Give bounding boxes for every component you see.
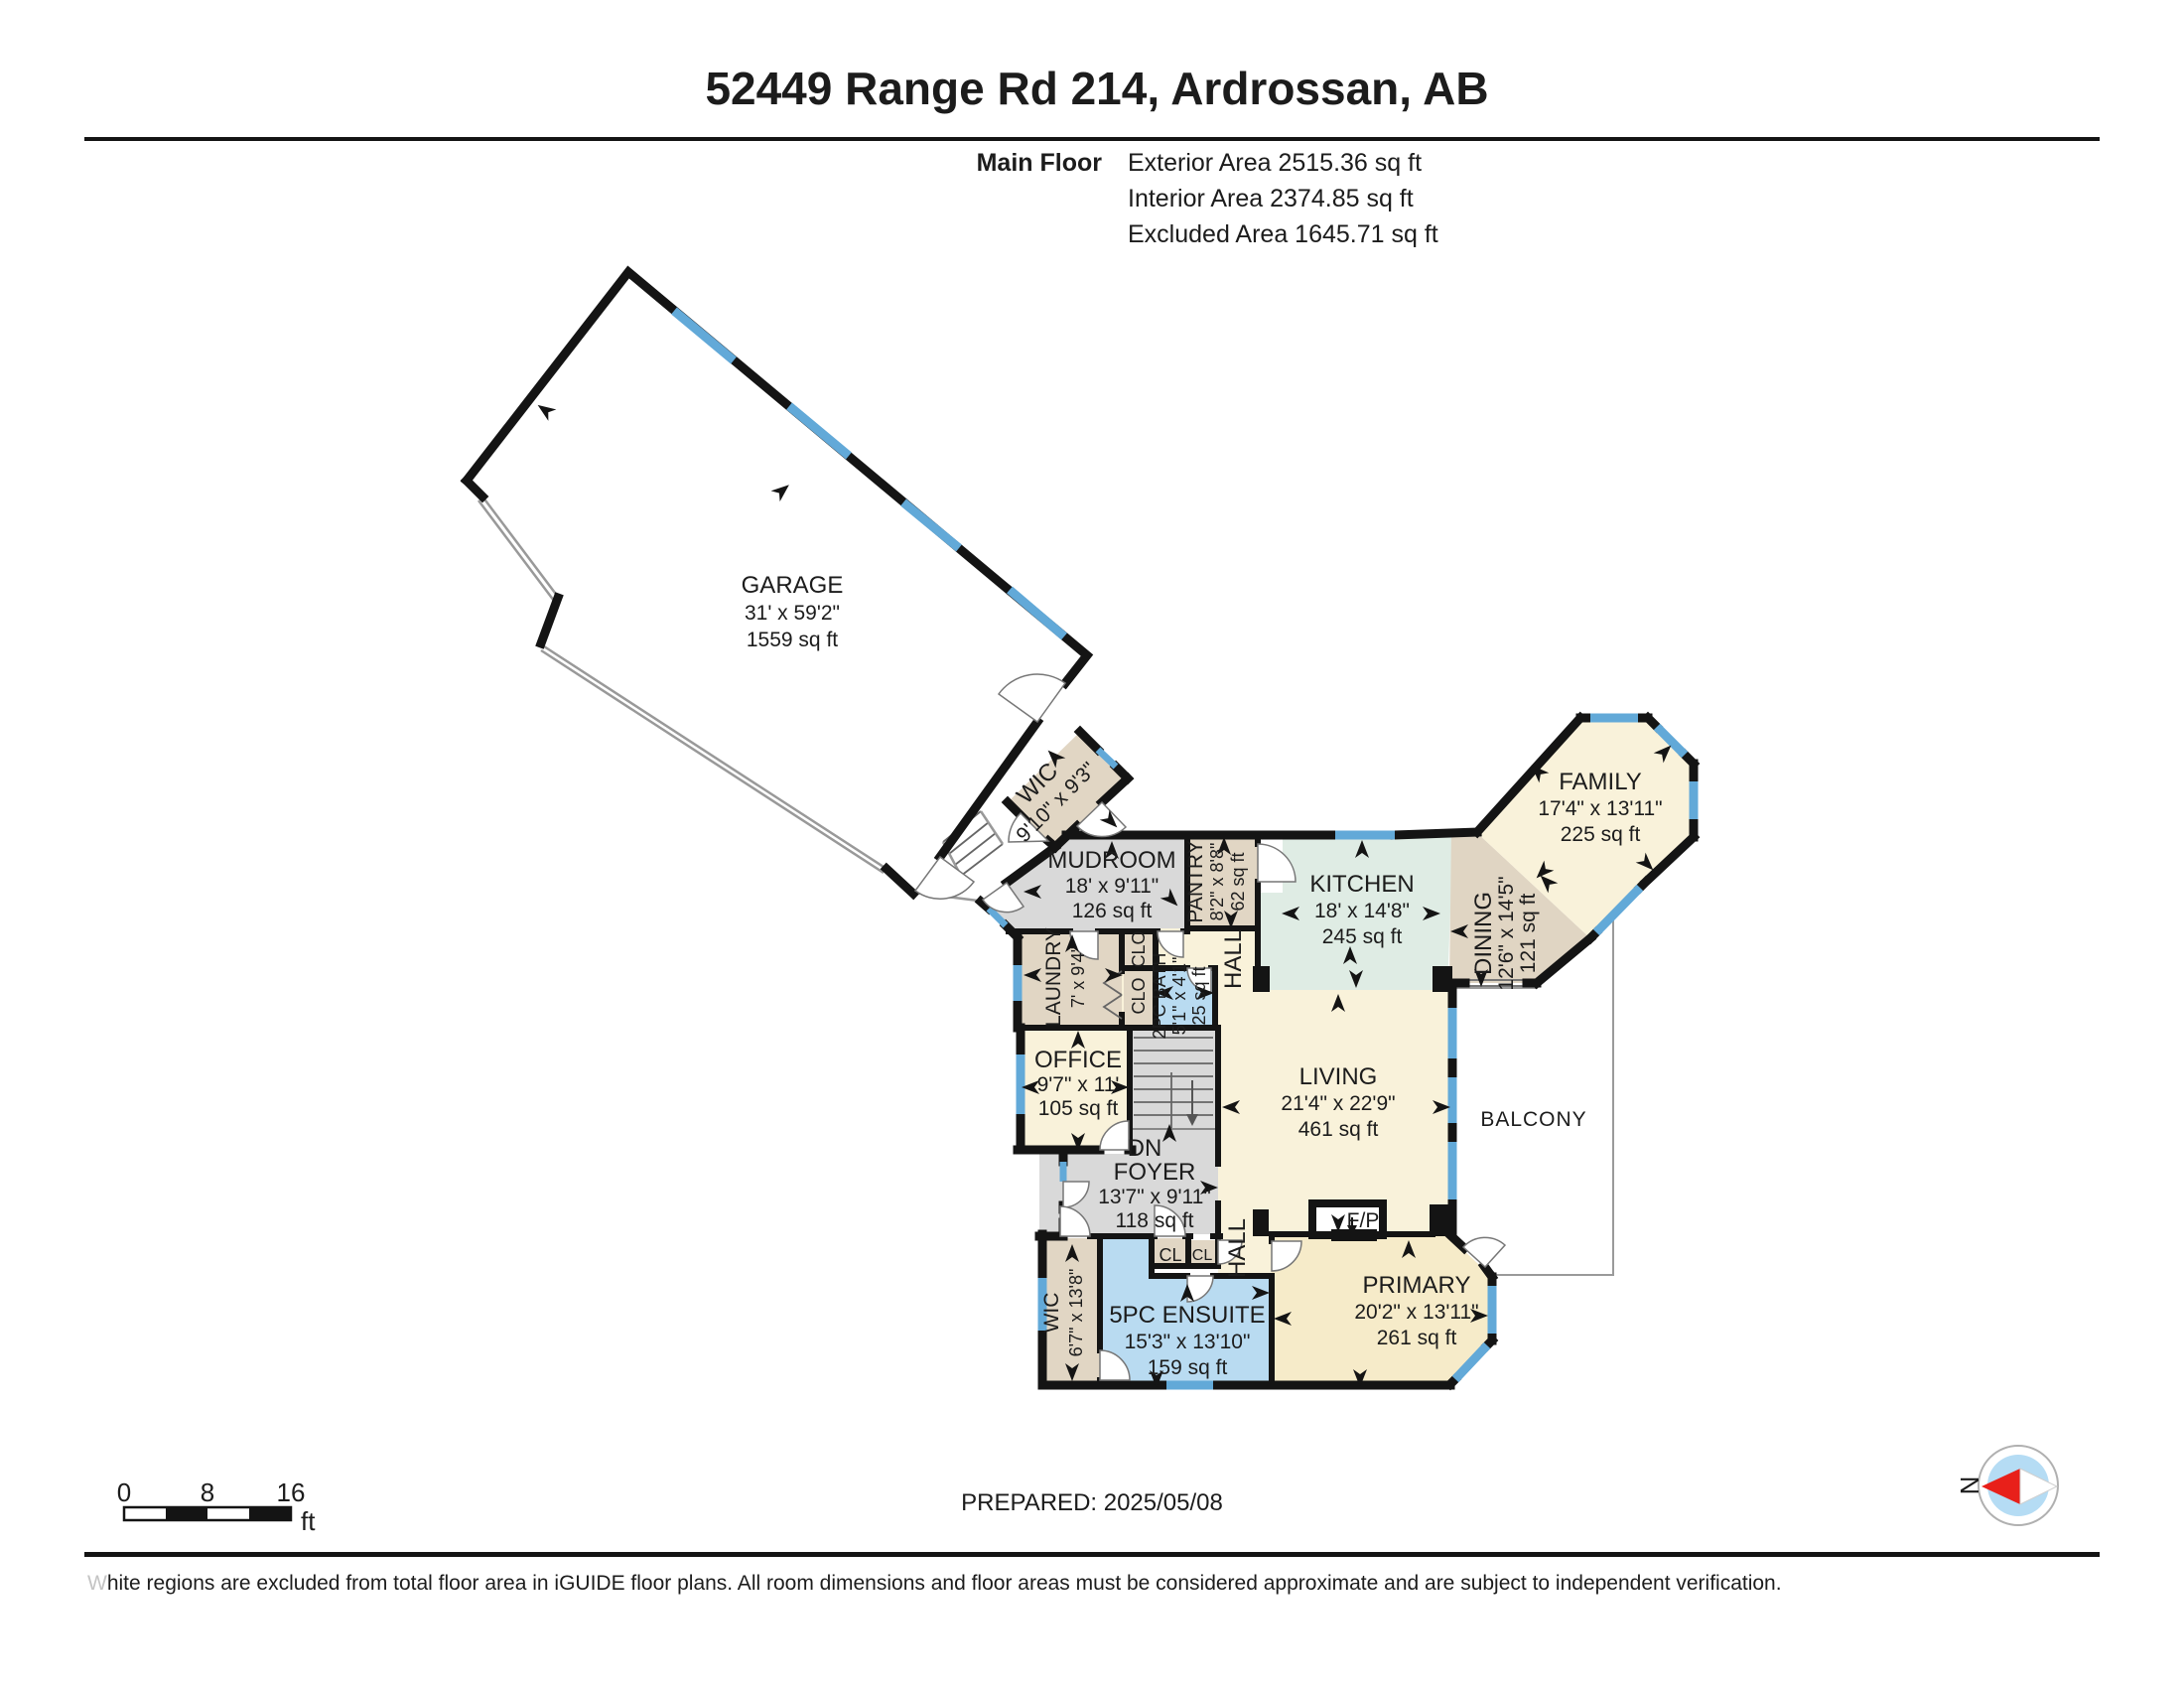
prepared-date: PREPARED: 2025/05/08 [961,1489,1223,1516]
svg-text:17'4" x 13'11": 17'4" x 13'11" [1538,797,1662,820]
floor-label: Main Floor [977,149,1103,177]
label-closet-2: CL [1192,1247,1213,1264]
footer-divider [84,1552,2100,1557]
svg-text:2PC BATH: 2PC BATH [1150,953,1169,1040]
svg-text:DN: DN [1128,1135,1162,1162]
svg-text:62 sq ft: 62 sq ft [1228,852,1248,911]
svg-text:FOYER: FOYER [1114,1159,1196,1186]
page-title: 52449 Range Rd 214, Ardrossan, AB [705,63,1488,114]
label-kitchen: KITCHEN 18' x 14'8" 245 sq ft [1309,871,1414,948]
svg-text:HALL: HALL [1224,1218,1251,1278]
compass-north-label: N [1955,1477,1984,1495]
room-laundry [1009,931,1122,1025]
svg-text:18' x 9'11": 18' x 9'11" [1065,875,1159,898]
svg-text:HALL: HALL [1220,929,1247,989]
svg-text:KITCHEN: KITCHEN [1309,871,1414,898]
svg-text:WIC: WIC [1040,1293,1063,1334]
svg-text:CLO: CLO [1129,930,1149,967]
room-ensuite-shower [1102,1238,1152,1276]
svg-text:5PC ENSUITE: 5PC ENSUITE [1109,1302,1265,1329]
svg-text:FAMILY: FAMILY [1559,769,1642,795]
svg-text:PRIMARY: PRIMARY [1363,1272,1471,1299]
svg-text:5'1" x 4'1": 5'1" x 4'1" [1169,957,1189,1036]
svg-text:12'6" x 14'5": 12'6" x 14'5" [1495,876,1518,990]
svg-text:GARAGE: GARAGE [742,572,844,599]
svg-text:121 sq ft: 121 sq ft [1517,894,1540,974]
svg-text:LAUNDRY: LAUNDRY [1042,927,1065,1027]
svg-text:DINING: DINING [1470,892,1497,975]
footer-divider-and-disclaimer: White regions are excluded from total fl… [84,1552,2100,1595]
svg-text:CL: CL [1192,1247,1213,1264]
svg-text:BALCONY: BALCONY [1480,1108,1586,1131]
svg-text:25 sq ft: 25 sq ft [1189,966,1209,1025]
label-closet-upper: CLO [1129,930,1149,967]
svg-text:CLO: CLO [1129,977,1149,1014]
svg-text:18' x 14'8": 18' x 14'8" [1314,900,1410,922]
svg-text:31' x 59'2": 31' x 59'2" [745,602,840,625]
scale-unit: ft [301,1506,316,1536]
svg-text:PREPARED: 2025/05/08: PREPARED: 2025/05/08 [961,1489,1223,1516]
label-hall-upper: HALL [1220,929,1247,989]
scale-tick-16: 16 [277,1477,306,1507]
svg-text:F/P: F/P [1347,1209,1380,1232]
svg-text:20'2" x 13'11": 20'2" x 13'11" [1354,1301,1478,1324]
svg-text:461 sq ft: 461 sq ft [1298,1118,1379,1141]
disclaimer: White regions are excluded from total fl… [87,1572,1782,1595]
svg-text:7' x 9'4": 7' x 9'4" [1068,946,1088,1008]
label-balcony: BALCONY [1480,1108,1586,1131]
label-stairs-down: DN [1128,1135,1162,1162]
excluded-area: Excluded Area 1645.71 sq ft [1128,220,1438,248]
svg-text:OFFICE: OFFICE [1034,1047,1122,1073]
label-closet-lower: CLO [1129,977,1149,1014]
label-hall-lower: HALL [1224,1218,1251,1278]
floor-plan-canvas: 52449 Range Rd 214, Ardrossan, AB Main F… [0,0,2184,1688]
svg-text:13'7" x 9'11": 13'7" x 9'11" [1098,1186,1211,1208]
scale-bar: 0 8 16 ft [117,1477,316,1536]
scale-tick-0: 0 [117,1477,131,1507]
svg-text:MUDROOM: MUDROOM [1047,847,1175,874]
svg-text:225 sq ft: 225 sq ft [1561,823,1641,846]
svg-text:9'7" x 11': 9'7" x 11' [1037,1073,1120,1096]
svg-text:245 sq ft: 245 sq ft [1322,925,1403,948]
svg-text:PANTRY: PANTRY [1184,840,1207,922]
header: 52449 Range Rd 214, Ardrossan, AB Main F… [84,63,2100,248]
svg-text:159 sq ft: 159 sq ft [1148,1356,1228,1379]
label-fireplace: F/P [1347,1209,1380,1232]
svg-text:118 sq ft: 118 sq ft [1116,1209,1194,1232]
label-office: OFFICE 9'7" x 11' 105 sq ft [1034,1047,1122,1120]
svg-text:126 sq ft: 126 sq ft [1072,900,1153,922]
svg-text:6'7" x 13'8": 6'7" x 13'8" [1066,1269,1086,1357]
label-closet-1: CL [1159,1245,1181,1265]
compass: N [1955,1446,2058,1525]
label-garage: GARAGE 31' x 59'2" 1559 sq ft [742,572,844,651]
svg-text:15'3" x 13'10": 15'3" x 13'10" [1125,1331,1251,1353]
room-stairs [1132,1028,1215,1129]
exterior-area: Exterior Area 2515.36 sq ft [1128,149,1422,177]
svg-text:LIVING: LIVING [1299,1063,1378,1090]
interior-area: Interior Area 2374.85 sq ft [1128,185,1414,212]
svg-text:1559 sq ft: 1559 sq ft [747,629,838,651]
svg-text:CL: CL [1159,1245,1181,1265]
svg-text:21'4" x 22'9": 21'4" x 22'9" [1281,1092,1395,1115]
svg-text:105 sq ft: 105 sq ft [1038,1097,1119,1120]
svg-text:261 sq ft: 261 sq ft [1377,1327,1457,1349]
label-pantry: PANTRY 8'2" x 8'8" 62 sq ft [1184,840,1248,922]
scale-tick-8: 8 [201,1477,214,1507]
svg-text:8'2" x 8'8": 8'2" x 8'8" [1207,843,1227,921]
header-divider [84,137,2100,141]
